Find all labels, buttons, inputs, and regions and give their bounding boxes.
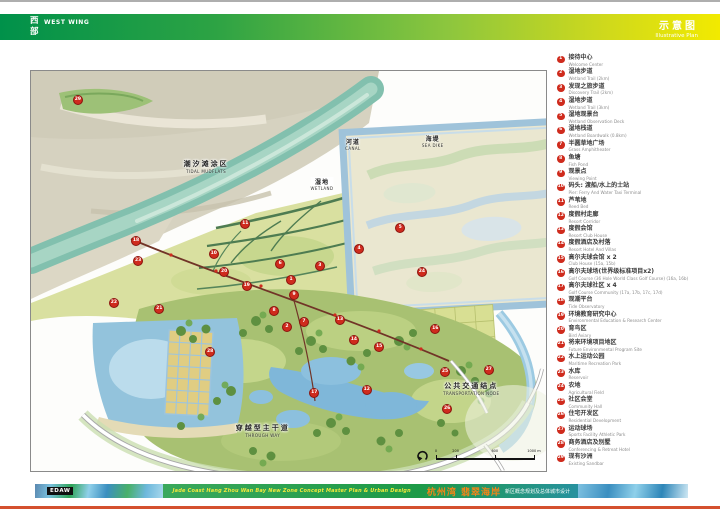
scale-tick-label: 200 [452,449,459,453]
legend-item-text: 湿地观景台Wetland Observation Deck [569,112,625,124]
map-marker-9: 9 [289,290,299,300]
legend-label-en: Golf Course Community (17a, 17b, 17c, 17… [569,290,663,295]
scale-tick-label: 0 [435,449,437,453]
legend-item-17: 17高尔夫球社区 x 4Golf Course Community (17a, … [557,283,718,295]
legend-label-en: Existing Sandbar [569,461,604,466]
header-right: 示意图 Illustrative Plan [655,17,698,39]
map-marker-26: 26 [442,404,452,414]
legend-number-badge: 13 [557,227,565,235]
legend-item-text: 住宅开发区Residential Development [569,411,622,423]
legend-label-cn: 湿地步道 [569,69,610,76]
legend-item-text: 社区会堂Community Hall [569,397,603,409]
legend-number-badge: 23 [557,369,565,377]
legend-item-20: 20育鸟区Bird Aviary [557,326,718,338]
legend-item-text: 水库Reservoir [569,369,589,381]
legend-label-cn: 发现之旅步道 [569,84,613,91]
map-marker-7: 7 [299,317,309,327]
legend-number-badge: 11 [557,198,565,206]
legend-label-en: Wetland Observation Deck [569,119,625,124]
legend-label-en: Fish Pond [569,162,589,167]
legend-item-22: 22水上运动公园Maritime Recreation Park [557,354,718,366]
legend-number-badge: 8 [557,155,565,163]
legend-number-badge: 28 [557,440,565,448]
footer-wave-collage [578,484,688,498]
legend-label-cn: 住宅开发区 [569,411,622,418]
legend-label-en: Wetland Trail (3km) [569,105,610,110]
legend-number-badge: 20 [557,326,565,334]
footer-strip: EDAW Jade Coast Hang Zhou Wan Bay New Zo… [35,484,688,498]
legend-number-badge: 27 [557,426,565,434]
legend-label-en: Grass Amphitheater [569,147,611,152]
west-wing-en-label: WEST WING [44,19,89,38]
legend-label-cn: 湿地观景台 [569,112,625,119]
legend-label-cn: 现有沙洲 [569,454,604,461]
scale-tick-label: 600 [491,449,498,453]
scale-tick [534,455,535,460]
legend: 1接待中心Welcome Center2湿地步道Wetland Trail (2… [557,55,718,466]
map-marker-24: 24 [417,267,427,277]
legend-number-badge: 7 [557,141,565,149]
map-marker-29: 29 [73,95,83,105]
legend-label-cn: 度假村走廊 [569,212,601,219]
footer-title-block: 杭州湾 翡翠海岸 新区概念规划及总体城市设计 [419,484,578,498]
legend-item-text: 运动球场Sports Facility Athletic Park [569,426,626,438]
legend-item-9: 9观景点Viewing Point [557,169,718,181]
legend-label-en: Viewing Point [569,176,597,181]
legend-item-29: 29现有沙洲Existing Sandbar [557,454,718,466]
legend-item-text: 湿地栈道Wetland Boardwalk (0.8km) [569,126,627,138]
legend-item-12: 12度假村走廊Resort Corridor [557,212,718,224]
legend-label-en: Sports Facility Athletic Park [569,432,626,437]
map-panel: 潮汐滩涂区 TIDAL MUDFLATS 湿地 WETLAND 河道 CANAL… [30,70,547,472]
legend-label-cn: 观潮平台 [569,297,605,304]
legend-item-10: 10码头: 渡船/水上的士站Pier: Ferry And Water Taxi… [557,183,718,195]
legend-item-7: 7半圆草地广场Grass Amphitheater [557,141,718,153]
footer-title-cn: 杭州湾 翡翠海岸 [427,485,501,498]
legend-label-en: Wetland Trail (2km) [569,76,610,81]
legend-label-cn: 高尔夫球会馆 x 2 [569,255,617,262]
legend-item-text: 接待中心Welcome Center [569,55,604,67]
legend-item-19: 19环境教育研究中心Environmental Education & Rese… [557,312,718,324]
map-marker-8: 8 [269,306,279,316]
legend-item-3: 3发现之旅步道Discovery Trail (2km) [557,84,718,96]
map-marker-1: 1 [286,275,296,285]
legend-label-cn: 度假酒店及村落 [569,240,617,247]
legend-item-26: 26住宅开发区Residential Development [557,411,718,423]
legend-label-en: Resort Hotel And Villas [569,247,617,252]
legend-number-badge: 26 [557,412,565,420]
map-marker-25: 25 [440,367,450,377]
legend-label-cn: 度假会馆 [569,226,608,233]
legend-item-14: 14度假酒店及村落Resort Hotel And Villas [557,240,718,252]
legend-item-13: 13度假会馆Resort Club House [557,226,718,238]
legend-number-badge: 14 [557,241,565,249]
page: 西部 WEST WING 示意图 Illustrative Plan [0,0,720,509]
legend-item-text: 度假会馆Resort Club House [569,226,608,238]
legend-label-cn: 社区会堂 [569,397,603,404]
legend-item-4: 4湿地步道Wetland Trail (3km) [557,98,718,110]
map-marker-15: 15 [374,342,384,352]
legend-number-badge: 4 [557,98,565,106]
legend-label-en: Bird Aviary [569,333,592,338]
legend-label-cn: 高尔夫球社区 x 4 [569,283,663,290]
legend-item-text: 鱼塘Fish Pond [569,155,589,167]
plan-title-cn: 示意图 [655,17,698,32]
legend-label-en: Future Environmental Program Site [569,347,643,352]
map-marker-10: 10 [209,249,219,259]
header-left: 西部 WEST WING [30,16,89,38]
legend-item-24: 24农地Agricultural Field [557,383,718,395]
legend-number-badge: 6 [557,127,565,135]
legend-label-cn: 湿地栈道 [569,126,627,133]
legend-label-cn: 将来环境项目地区 [569,340,643,347]
map-marker-16: 16 [430,324,440,334]
legend-item-1: 1接待中心Welcome Center [557,55,718,67]
map-marker-28: 28 [205,347,215,357]
scale-tick [495,455,496,460]
map-marker-19: 19 [242,281,252,291]
map-marker-11: 11 [240,219,250,229]
legend-label-en: Reservoir [569,375,589,380]
legend-number-badge: 15 [557,255,565,263]
legend-item-2: 2湿地步道Wetland Trail (2km) [557,69,718,81]
legend-item-text: 度假村走廊Resort Corridor [569,212,601,224]
footer-green-band: Jade Coast Hang Zhou Wan Bay New Zone Co… [163,484,419,498]
legend-item-text: 码头: 渡船/水上的士站Pier: Ferry And Water Taxi T… [569,183,642,195]
legend-label-en: Environmental Education & Research Cente… [569,318,662,323]
legend-label-cn: 育鸟区 [569,326,592,333]
legend-number-badge: 21 [557,341,565,349]
legend-label-cn: 鱼塘 [569,155,589,162]
legend-number-badge: 24 [557,383,565,391]
legend-item-text: 商务酒店及别墅Conferencing & Retreat Hotel [569,440,631,452]
legend-item-text: 芦苇地Reed Bed [569,198,589,210]
legend-item-23: 23水库Reservoir [557,369,718,381]
legend-label-cn: 观景点 [569,169,597,176]
legend-number-badge: 2 [557,70,565,78]
edaw-logo: EDAW [47,487,73,495]
legend-label-cn: 半圆草地广场 [569,141,611,148]
legend-item-text: 高尔夫球会馆 x 2Club House (15a, 15b) [569,255,617,267]
legend-item-18: 18观潮平台Tide Observatory [557,297,718,309]
legend-item-16: 16高尔夫球场(世界级标准项目x2)Golf Course (36 Hole W… [557,269,718,281]
map-marker-18: 18 [131,236,141,246]
legend-item-text: 农地Agricultural Field [569,383,604,395]
legend-label-cn: 芦苇地 [569,198,589,205]
legend-item-text: 高尔夫球场(世界级标准项目x2)Golf Course (36 Hole Wor… [569,269,689,281]
legend-item-text: 度假酒店及村落Resort Hotel And Villas [569,240,617,252]
legend-item-text: 将来环境项目地区Future Environmental Program Sit… [569,340,643,352]
footer-subtitle-en: Jade Coast Hang Zhou Wan Bay New Zone Co… [173,488,411,494]
legend-label-en: Tide Observatory [569,304,605,309]
plan-title-en: Illustrative Plan [655,33,698,39]
map-marker-6: 6 [275,259,285,269]
legend-number-badge: 29 [557,455,565,463]
map-marker-27: 27 [484,365,494,375]
map-marker-17: 17 [309,388,319,398]
map-marker-23: 23 [133,256,143,266]
map-marker-21: 21 [154,304,164,314]
map-markers: 1234567891011121314151617181920212223242… [31,71,546,471]
legend-label-cn: 湿地步道 [569,98,610,105]
legend-label-cn: 水上运动公园 [569,354,622,361]
legend-item-11: 11芦苇地Reed Bed [557,198,718,210]
legend-item-text: 湿地步道Wetland Trail (2km) [569,69,610,81]
legend-label-cn: 运动球场 [569,426,626,433]
legend-number-badge: 25 [557,398,565,406]
legend-item-text: 现有沙洲Existing Sandbar [569,454,604,466]
legend-number-badge: 17 [557,284,565,292]
legend-item-text: 湿地步道Wetland Trail (3km) [569,98,610,110]
map-marker-13: 13 [335,315,345,325]
map-marker-14: 14 [349,335,359,345]
map-marker-3: 3 [315,261,325,271]
legend-item-6: 6湿地栈道Wetland Boardwalk (0.8km) [557,126,718,138]
map-marker-20: 20 [219,267,229,277]
legend-item-28: 28商务酒店及别墅Conferencing & Retreat Hotel [557,440,718,452]
legend-item-text: 半圆草地广场Grass Amphitheater [569,141,611,153]
legend-label-en: Club House (15a, 15b) [569,261,617,266]
legend-label-cn: 码头: 渡船/水上的士站 [569,183,642,190]
legend-label-en: Community Hall [569,404,603,409]
north-arrow-icon [416,450,428,462]
legend-label-cn: 环境教育研究中心 [569,312,662,319]
scale-tick-label: 1000 m [527,449,540,453]
legend-item-25: 25社区会堂Community Hall [557,397,718,409]
legend-label-cn: 商务酒店及别墅 [569,440,631,447]
legend-item-text: 环境教育研究中心Environmental Education & Resear… [569,312,662,324]
legend-number-badge: 18 [557,298,565,306]
west-wing-cn-label: 西部 [30,16,40,38]
legend-number-badge: 12 [557,212,565,220]
legend-number-badge: 22 [557,355,565,363]
legend-label-cn: 高尔夫球场(世界级标准项目x2) [569,269,689,276]
scale-tick [456,455,457,460]
legend-item-text: 育鸟区Bird Aviary [569,326,592,338]
legend-label-en: Wetland Boardwalk (0.8km) [569,133,627,138]
legend-number-badge: 5 [557,113,565,121]
legend-item-21: 21将来环境项目地区Future Environmental Program S… [557,340,718,352]
legend-item-text: 水上运动公园Maritime Recreation Park [569,354,622,366]
map-marker-4: 4 [354,244,364,254]
legend-label-en: Reed Bed [569,204,589,209]
legend-label-en: Conferencing & Retreat Hotel [569,447,631,452]
legend-label-cn: 水库 [569,369,589,376]
map-marker-22: 22 [109,298,119,308]
legend-item-8: 8鱼塘Fish Pond [557,155,718,167]
legend-number-badge: 9 [557,170,565,178]
footer-logo-collage: EDAW [35,484,163,498]
legend-label-en: Resort Club House [569,233,608,238]
legend-label-en: Pier: Ferry And Water Taxi Terminal [569,190,642,195]
legend-item-text: 观潮平台Tide Observatory [569,297,605,309]
legend-label-en: Agricultural Field [569,390,604,395]
legend-label-en: Discovery Trail (2km) [569,90,613,95]
map-marker-12: 12 [362,385,372,395]
legend-item-text: 发现之旅步道Discovery Trail (2km) [569,84,613,96]
footer-subtitle-cn: 新区概念规划及总体城市设计 [505,488,570,495]
legend-number-badge: 10 [557,184,565,192]
scale-bar-ticks: 02006001000 m [436,449,534,464]
legend-label-en: Golf Course (36 Hole World Class Golf Co… [569,276,689,281]
page-top-edge [0,0,720,2]
legend-label-en: Resort Corridor [569,219,601,224]
legend-number-badge: 1 [557,56,565,64]
legend-number-badge: 16 [557,269,565,277]
legend-number-badge: 3 [557,84,565,92]
legend-label-cn: 接待中心 [569,55,604,62]
legend-label-en: Welcome Center [569,62,604,67]
scale-bar: 02006001000 m [416,449,536,464]
legend-item-15: 15高尔夫球会馆 x 2Club House (15a, 15b) [557,255,718,267]
legend-item-text: 高尔夫球社区 x 4Golf Course Community (17a, 17… [569,283,663,295]
legend-label-en: Residential Development [569,418,622,423]
legend-item-5: 5湿地观景台Wetland Observation Deck [557,112,718,124]
legend-number-badge: 19 [557,312,565,320]
legend-label-en: Maritime Recreation Park [569,361,622,366]
header-bar: 西部 WEST WING 示意图 Illustrative Plan [0,14,720,40]
legend-item-27: 27运动球场Sports Facility Athletic Park [557,426,718,438]
legend-label-cn: 农地 [569,383,604,390]
map-marker-2: 2 [282,322,292,332]
map-marker-5: 5 [395,223,405,233]
scale-tick [436,455,437,460]
legend-item-text: 观景点Viewing Point [569,169,597,181]
